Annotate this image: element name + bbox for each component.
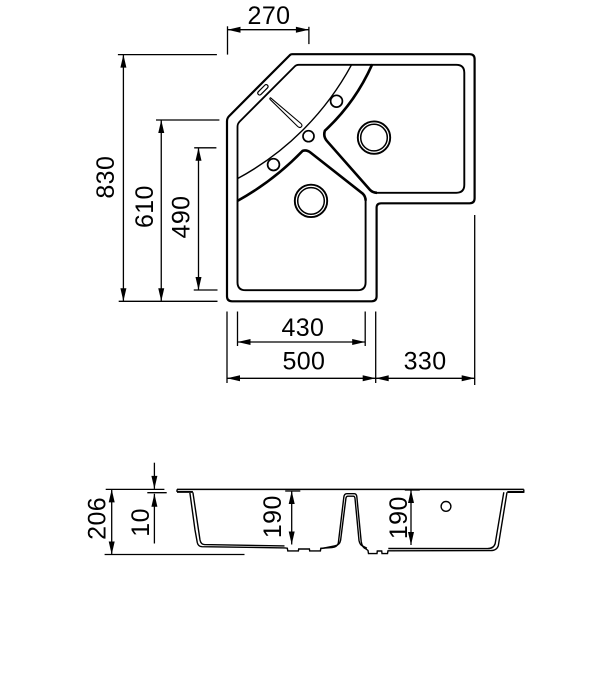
svg-text:270: 270	[248, 2, 291, 30]
svg-text:206: 206	[84, 497, 112, 540]
svg-text:500: 500	[282, 347, 325, 375]
svg-text:610: 610	[131, 185, 159, 228]
svg-text:190: 190	[385, 496, 413, 539]
svg-text:430: 430	[281, 314, 324, 342]
svg-text:330: 330	[404, 347, 447, 375]
svg-text:490: 490	[167, 196, 195, 239]
svg-text:190: 190	[259, 495, 287, 538]
svg-text:830: 830	[92, 156, 120, 199]
svg-text:10: 10	[127, 508, 155, 537]
